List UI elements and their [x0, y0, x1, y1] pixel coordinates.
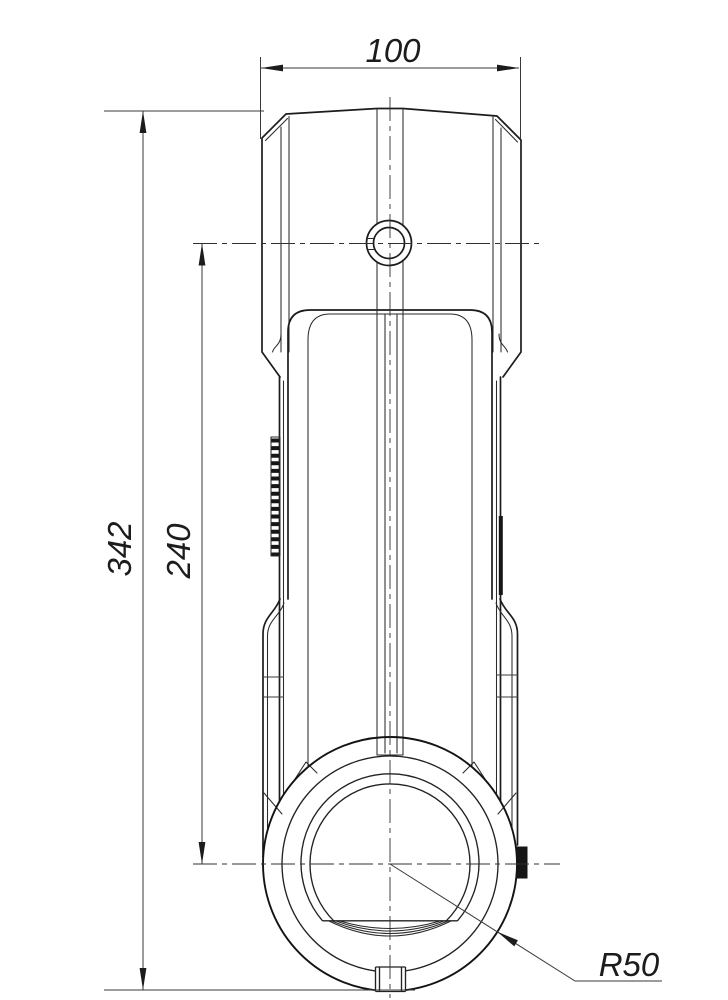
arrowhead-up [199, 244, 206, 266]
arrowhead-down [199, 842, 206, 864]
arrowhead-down [140, 968, 147, 990]
dim-label-center-distance: 240 [160, 523, 197, 580]
clip-edge [499, 516, 503, 595]
dimension-height-240: 240 [160, 244, 205, 865]
dim-label-top-width: 100 [365, 32, 421, 69]
dimension-width-100: 100 [261, 32, 521, 139]
arrowhead-radius [497, 932, 518, 947]
arrowhead-right [497, 65, 519, 72]
flashlight-front-view-drawing: 100 342 240 R50 [0, 0, 728, 1000]
dim-label-radius: R50 [599, 946, 660, 983]
side-switch-tab [517, 847, 528, 879]
bezel-bottom-tab [376, 967, 406, 992]
tail-button [367, 221, 412, 266]
button-inner-ring [374, 228, 405, 259]
technical-drawing-sheet: 100 342 240 R50 [0, 0, 728, 1000]
dim-label-overall-height: 342 [101, 521, 138, 576]
arrowhead-up [140, 111, 147, 133]
arrowhead-left [261, 65, 283, 72]
